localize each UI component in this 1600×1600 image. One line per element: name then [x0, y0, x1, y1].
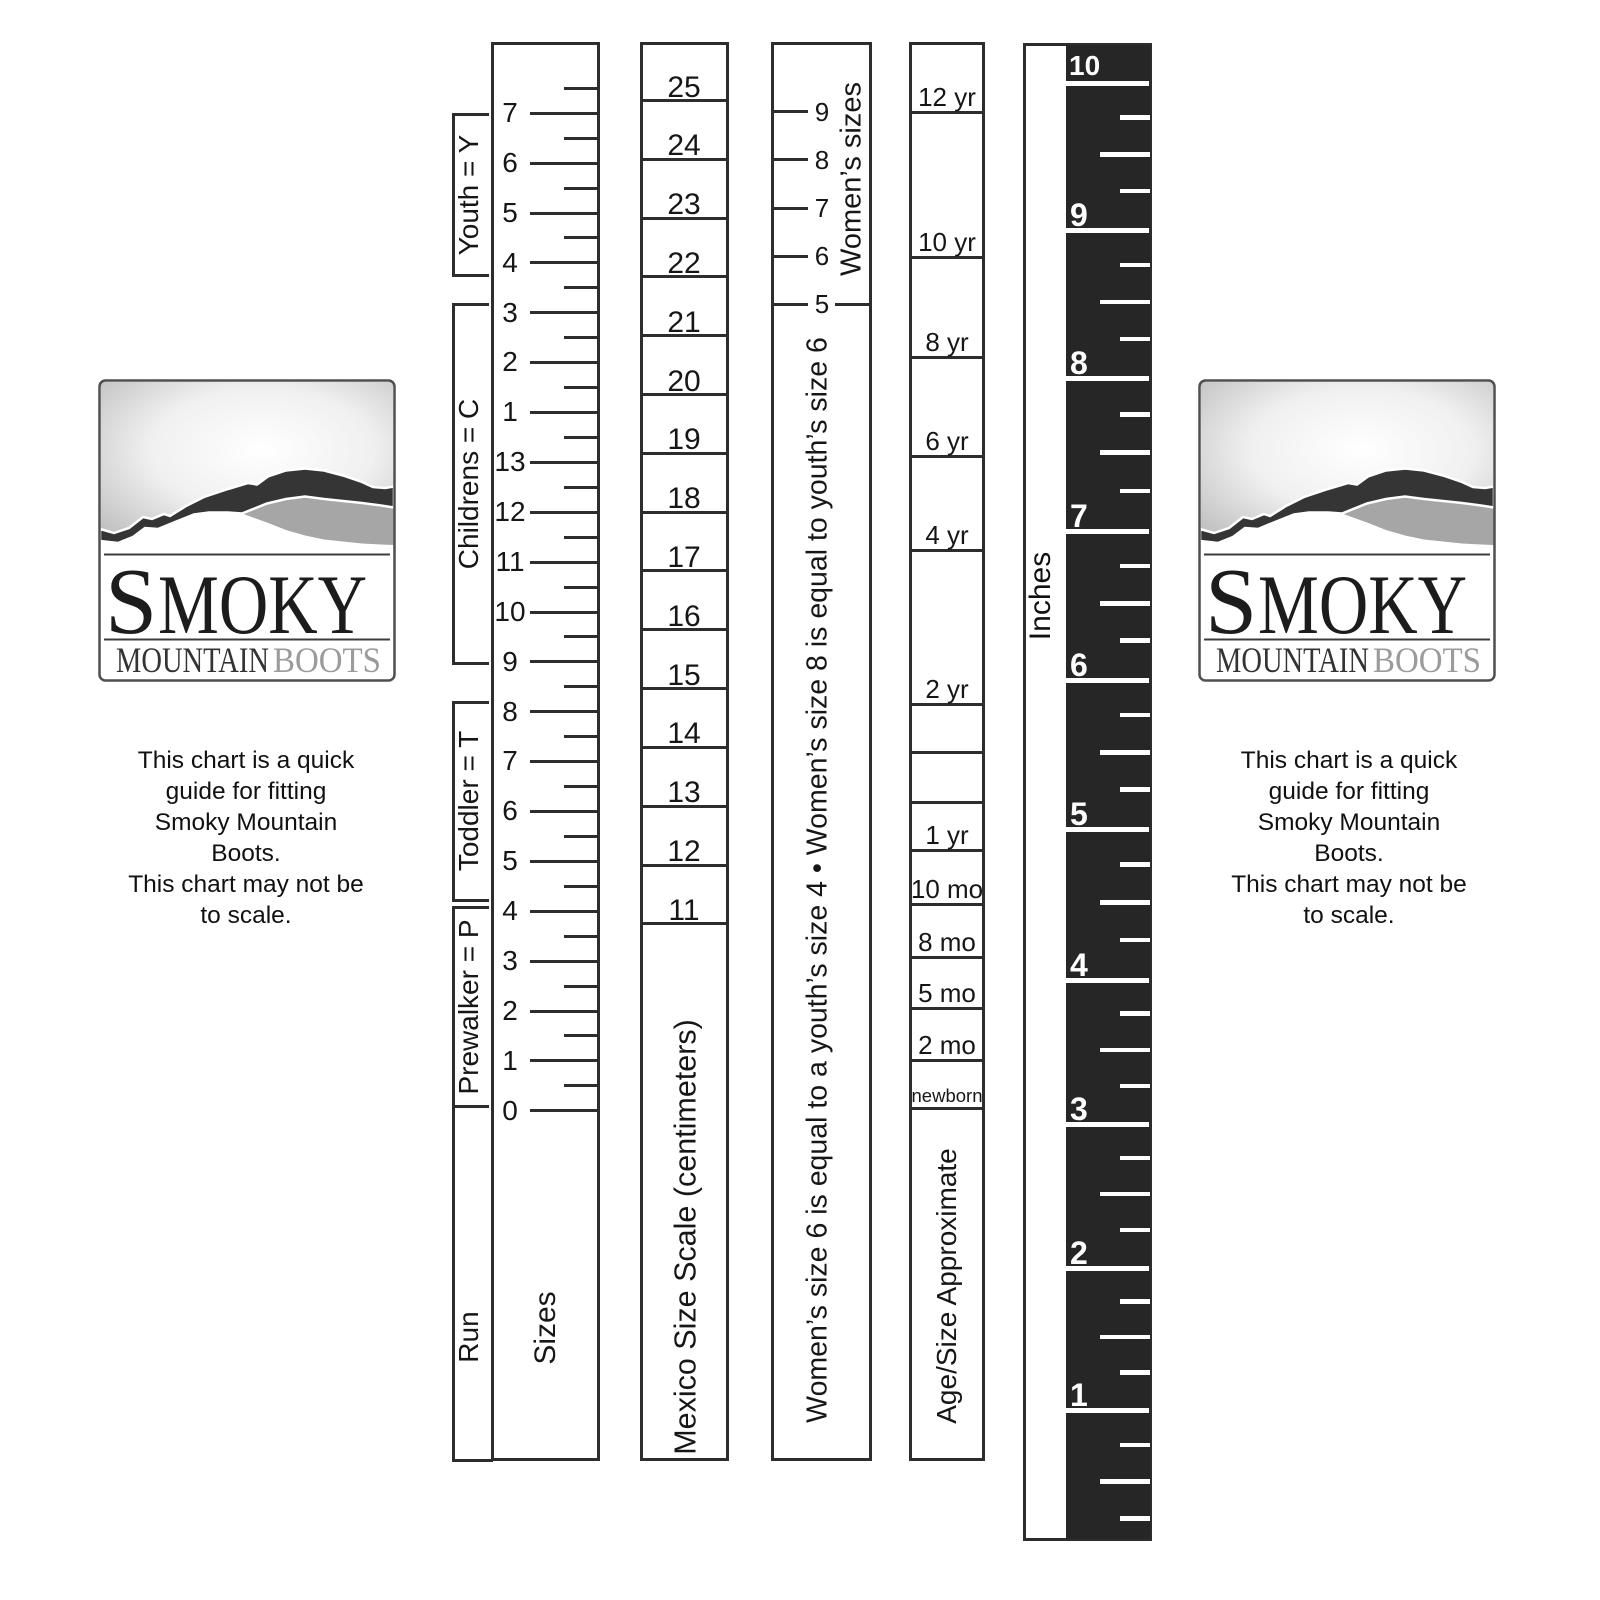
svg-text:MOUNTAIN: MOUNTAIN — [1216, 640, 1369, 680]
svg-text:MOKY: MOKY — [158, 558, 367, 652]
svg-text:MOUNTAIN: MOUNTAIN — [116, 640, 269, 680]
svg-text:MOKY: MOKY — [1258, 558, 1467, 652]
svg-text:S: S — [1205, 550, 1257, 654]
svg-text:S: S — [105, 550, 157, 654]
svg-text:BOOTS: BOOTS — [273, 640, 381, 680]
svg-text:BOOTS: BOOTS — [1373, 640, 1481, 680]
